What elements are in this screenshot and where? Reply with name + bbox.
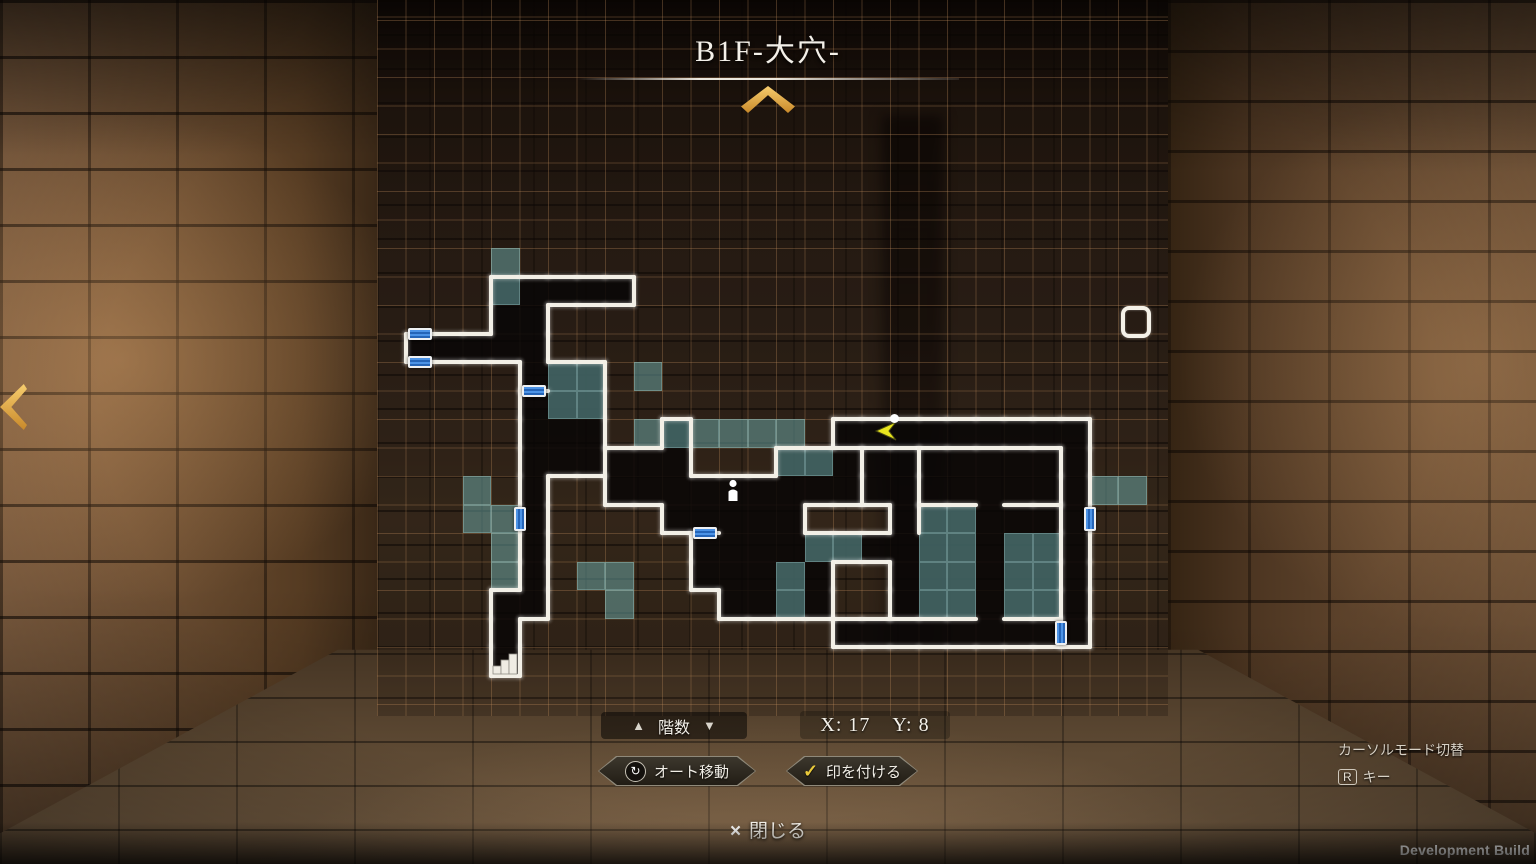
game-screen: B1F-大穴- ▲ 階数 ▼ X: 17 Y: 8 ↻ オート移動 ✓ 印を付け… [0,0,1536,864]
map-wall [546,474,550,507]
map-cell-dark [805,476,834,505]
map-cell-dark [634,476,663,505]
map-cell-dark [662,505,691,534]
map-cell-teal [919,505,948,534]
map-cell-dark [1061,590,1090,619]
map-cell-dark [1033,419,1062,448]
map-wall [603,417,607,450]
auto-move-label: オート移動 [654,761,729,782]
map-wall [518,474,522,507]
map-cell-dark [691,476,720,505]
map-cell-teal [919,562,948,591]
map-cell-dark [776,533,805,562]
map-wall [546,303,550,336]
map-cell-dark [719,505,748,534]
map-cell-teal [548,362,577,391]
key-suffix: キー [1363,767,1391,787]
map-wall [546,303,579,307]
map-cell-dark [605,476,634,505]
map-cell-dark [862,533,891,562]
map-wall [945,446,978,450]
map-wall [1059,531,1063,564]
map-wall [546,275,579,279]
map-cell-dark [605,277,634,306]
map-cell-dark [520,533,549,562]
map-wall [518,417,522,450]
map-wall [717,588,721,621]
map-wall [404,332,408,365]
map-wall [1002,417,1035,421]
map-cell-dark [1004,419,1033,448]
map-cell-teal [776,562,805,591]
floor-up-button[interactable]: ▲ [632,719,645,732]
map-wall [603,446,607,479]
map-wall [774,446,807,450]
map-wall [945,645,978,649]
wall-dot [890,414,899,423]
map-cell-dark [976,505,1005,534]
map-wall [1031,503,1064,507]
map-wall [1088,417,1092,450]
map-wall [603,446,636,450]
map-wall [603,275,636,279]
player-marker [726,479,740,506]
coord-x: X: 17 [820,714,870,737]
cursor-box [1121,306,1151,338]
map-cell-dark [520,334,549,363]
map-cell-dark [833,619,862,648]
map-wall [603,474,607,507]
map-wall [1002,617,1035,621]
map-cell-teal [776,590,805,619]
map-wall [1031,617,1064,621]
map-door-marker [693,527,717,539]
map-wall [831,588,835,621]
map-cell-teal [691,419,720,448]
map-cell-dark [833,448,862,477]
map-cell-dark [605,448,634,477]
map-cell-dark [976,476,1005,505]
map-wall [489,588,522,592]
map-cell-teal [1004,590,1033,619]
map-cell-dark [1004,448,1033,477]
map-wall [831,617,864,621]
map-cell-teal [548,391,577,420]
map-cell-dark [833,419,862,448]
map-wall [945,503,978,507]
map-cell-dark [748,562,777,591]
map-wall [746,474,779,478]
map-wall [1059,474,1063,507]
map-wall [546,474,579,478]
map-cell-dark [1061,533,1090,562]
map-wall [831,531,864,535]
map-wall [717,617,750,621]
map-cell-dark [976,619,1005,648]
map-door-marker [1055,621,1067,645]
map-wall [831,417,864,421]
floor-down-button[interactable]: ▼ [703,719,716,732]
map-cell-dark [634,448,663,477]
map-wall [831,503,864,507]
map-cell-teal [719,419,748,448]
map-wall [1002,446,1035,450]
map-cell-dark [890,505,919,534]
map-cell-teal [1004,533,1033,562]
map-cell-dark [947,448,976,477]
map-wall [831,617,835,650]
map-wall [546,360,579,364]
map-wall [917,503,921,536]
map-cell-teal [919,533,948,562]
map-cell-teal [947,533,976,562]
map-wall [546,531,550,564]
map-cell-dark [976,448,1005,477]
floor-selector: ▲ 階数 ▼ [601,712,747,739]
map-wall [689,417,693,450]
map-wall [860,474,864,507]
coordinates: X: 17 Y: 8 [800,711,950,739]
map-cell-dark [947,419,976,448]
auto-move-button[interactable]: ↻ オート移動 [598,756,756,786]
map-wall [945,417,978,421]
map-cell-dark [976,533,1005,562]
map-cell-teal [1118,476,1147,505]
map-wall [489,360,522,364]
map-cell-dark [833,476,862,505]
map-wall [489,275,522,279]
map-cell-dark [1004,505,1033,534]
map-wall [632,275,636,308]
map-cell-dark [1004,476,1033,505]
map-wall [689,560,693,593]
auto-move-icon: ↻ [625,761,646,782]
check-icon: ✓ [803,762,818,780]
map-cell-dark [805,590,834,619]
map-wall [1059,645,1092,649]
map-cell-dark [890,448,919,477]
map-cell-teal [1033,533,1062,562]
map-cell-dark [919,619,948,648]
map-cell-dark [1033,448,1062,477]
map-wall [831,446,864,450]
mark-button[interactable]: ✓ 印を付ける [786,756,918,786]
map-cell-teal [833,533,862,562]
cursor-mode-title: カーソルモード切替 [1338,740,1464,760]
map-cell-dark [1033,476,1062,505]
map-door-marker [408,356,432,368]
r-key-icon: R [1338,769,1357,785]
map-wall [831,560,864,564]
map-cell-dark [520,277,549,306]
map-cell-dark [719,533,748,562]
map-wall [1088,531,1092,564]
map-cell-teal [463,476,492,505]
map-cell-dark [919,419,948,448]
map-cell-dark [719,590,748,619]
map-cell-dark [890,619,919,648]
map-wall [888,645,921,649]
map-wall [603,303,636,307]
map-wall [1059,588,1063,621]
map-wall [546,588,550,621]
map-cell-teal [776,448,805,477]
map-wall [689,531,693,564]
map-cell-dark [491,305,520,334]
map-cell-teal [1033,590,1062,619]
map-cell-dark [976,590,1005,619]
map-wall [717,474,750,478]
map-wall [831,417,835,450]
map-cell-teal [919,590,948,619]
map-wall [1059,417,1092,421]
map-wall [774,617,807,621]
page-title: B1F-大穴- [0,26,1536,70]
map-wall [660,417,693,421]
map-cell-dark [748,476,777,505]
map-cell-dark [548,419,577,448]
map-cell-dark [890,476,919,505]
map-wall [945,617,978,621]
map-cell-teal [662,419,691,448]
map-cell-dark [1061,448,1090,477]
map-cell-dark [577,277,606,306]
map-wall [860,531,893,535]
map-cell-dark [976,419,1005,448]
map-cell-dark [947,476,976,505]
map-cell-teal [947,505,976,534]
cursor-mode-help: カーソルモード切替 R キー [1338,740,1464,787]
map-cell-dark [890,590,919,619]
map-cell-teal [1004,562,1033,591]
map-cell-dark [520,305,549,334]
floor-label: 階数 [658,714,690,738]
map-cell-teal [463,505,492,534]
map-cell-dark [491,619,520,648]
map-cell-dark [691,562,720,591]
map-wall [660,417,664,450]
map-cell-dark [862,448,891,477]
map-cell-teal [634,419,663,448]
map-cell-dark [577,448,606,477]
map-wall [831,645,864,649]
map-cell-teal [605,562,634,591]
map-cell-teal [1090,476,1119,505]
map-wall [489,588,493,621]
map-cell-dark [520,476,549,505]
map-cell-teal [577,362,606,391]
map-cell-dark [805,562,834,591]
map-cell-dark [748,505,777,534]
map-wall [660,503,664,536]
stairs-icon [492,648,519,680]
map-wall [489,303,493,336]
cursor-arrow-icon [872,421,897,446]
bottom-fade [0,822,1536,864]
map-wall [1002,645,1035,649]
map-cell-dark [976,562,1005,591]
map-cell-dark [748,590,777,619]
map-cell-dark [434,334,463,363]
map-cell-teal [491,533,520,562]
map-cell-dark [520,562,549,591]
map-wall [518,360,522,393]
map-wall [432,360,465,364]
map-cell-dark [548,448,577,477]
map-cell-dark [662,476,691,505]
map-cell-dark [776,476,805,505]
map-wall [888,446,921,450]
map-cell-dark [520,448,549,477]
map-cell-teal [605,590,634,619]
map-wall [888,617,921,621]
map-wall [1088,617,1092,650]
map-wall [603,360,607,393]
map-cell-dark [919,448,948,477]
map-wall [1088,588,1092,621]
map-wall [518,531,522,564]
map-cell-dark [890,533,919,562]
map-cell-dark [520,590,549,619]
map-wall [603,503,636,507]
coord-y: Y: 8 [892,714,929,737]
map-door-marker [522,385,546,397]
map-cell-teal [491,277,520,306]
map-panel[interactable] [377,0,1168,716]
map-cell-teal [805,448,834,477]
map-cell-dark [1061,562,1090,591]
map-cell-dark [1061,476,1090,505]
title-divider [577,78,959,80]
map-wall [660,531,693,535]
map-cell-teal [805,533,834,562]
map-cell-dark [719,562,748,591]
map-cell-teal [776,419,805,448]
map-wall [917,474,921,507]
map-wall [632,446,665,450]
mark-label: 印を付ける [826,761,901,782]
map-cell-teal [491,248,520,277]
title-area: B1F-大穴- [0,0,1536,80]
map-cell-dark [1061,419,1090,448]
map-door-marker [514,507,526,531]
map-wall [888,588,892,621]
map-wall [461,332,494,336]
map-cell-teal [634,362,663,391]
map-cell-dark [1004,619,1033,648]
map-cell-dark [919,476,948,505]
map-cell-dark [520,419,549,448]
map-cell-teal [947,562,976,591]
map-cell-dark [890,562,919,591]
map-cell-dark [463,334,492,363]
map-cell-teal [491,562,520,591]
map-door-marker [408,328,432,340]
map-cell-dark [491,590,520,619]
map-cell-dark [662,448,691,477]
map-cell-teal [748,419,777,448]
map-cell-dark [947,619,976,648]
map-cell-dark [548,277,577,306]
map-cell-dark [862,619,891,648]
map-cell-dark [862,476,891,505]
map-cell-teal [947,590,976,619]
map-cell-dark [1033,505,1062,534]
map-wall [1088,474,1092,507]
map-wall [432,332,465,336]
map-cell-teal [577,391,606,420]
map-cell-teal [577,562,606,591]
map-cell-teal [1033,562,1062,591]
map-wall [1002,503,1035,507]
map-cell-dark [776,505,805,534]
map-door-marker [1084,507,1096,531]
map-cell-dark [577,419,606,448]
map-cell-dark [491,334,520,363]
map-cell-dark [748,533,777,562]
